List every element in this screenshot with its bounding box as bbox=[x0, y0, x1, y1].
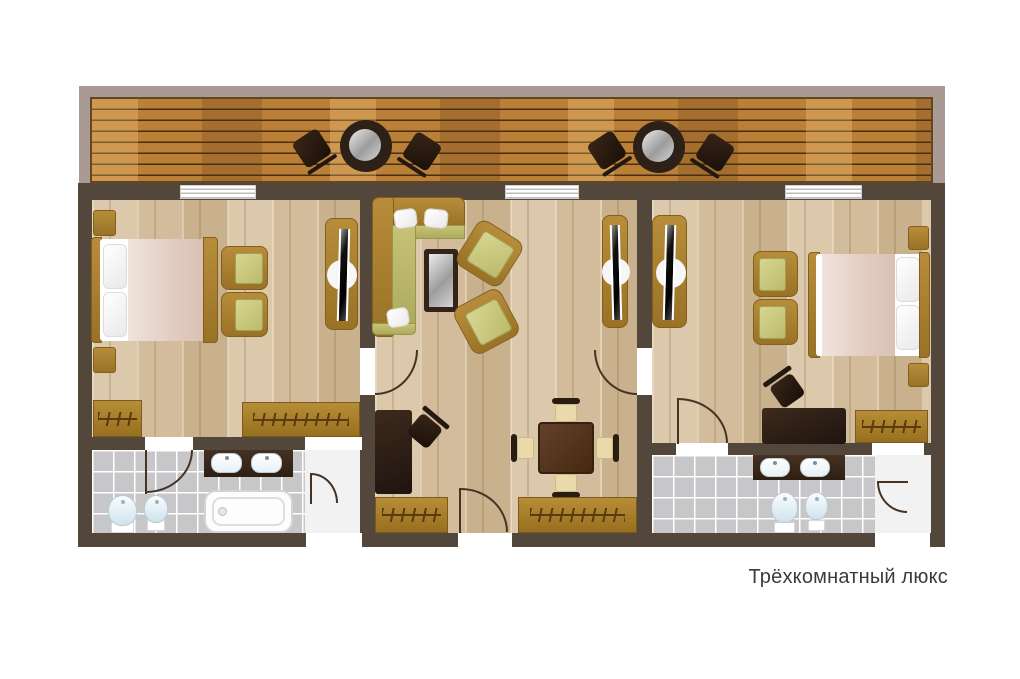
table-glass bbox=[349, 129, 381, 161]
armchair bbox=[221, 292, 268, 337]
headboard bbox=[919, 252, 930, 358]
pillow bbox=[896, 257, 920, 302]
wardrobe bbox=[375, 497, 448, 533]
wall-west bbox=[78, 183, 92, 547]
wardrobe bbox=[93, 400, 142, 437]
footboard bbox=[203, 237, 218, 343]
window-1 bbox=[180, 185, 256, 199]
dining-table bbox=[538, 422, 594, 474]
coffee-table bbox=[424, 249, 458, 312]
door-opening bbox=[360, 348, 375, 395]
tv-console-right bbox=[652, 215, 687, 328]
bidet bbox=[805, 492, 828, 520]
pillow bbox=[896, 305, 920, 350]
door-opening bbox=[875, 533, 930, 547]
pillow bbox=[103, 292, 127, 337]
bidet bbox=[144, 495, 168, 523]
door-opening bbox=[637, 348, 652, 395]
hanger-icon bbox=[98, 412, 137, 426]
hanger-icon bbox=[530, 508, 626, 522]
blanket bbox=[128, 239, 203, 341]
dining-chair bbox=[555, 474, 577, 492]
door-opening bbox=[145, 437, 193, 450]
sink bbox=[760, 458, 790, 477]
hanger-icon bbox=[862, 420, 920, 432]
door-opening bbox=[872, 443, 924, 455]
toilet bbox=[108, 495, 137, 526]
patio-table-icon bbox=[633, 121, 685, 173]
door-opening bbox=[676, 443, 728, 455]
bed-double-left bbox=[91, 237, 218, 343]
nightstand bbox=[93, 347, 116, 373]
toilet-base bbox=[774, 522, 795, 533]
desk bbox=[375, 410, 412, 494]
plan-caption: Трёхкомнатный люкс bbox=[749, 566, 948, 589]
bidet-base bbox=[808, 520, 825, 531]
dining-chair bbox=[517, 437, 534, 459]
floor-plan-page: Трёхкомнатный люкс bbox=[0, 0, 1020, 679]
dining-chair-back bbox=[613, 434, 619, 462]
hanger-icon bbox=[382, 508, 440, 522]
tv-console-left bbox=[325, 218, 358, 330]
table-glass bbox=[642, 130, 674, 162]
desk bbox=[762, 408, 846, 444]
window-3 bbox=[785, 185, 862, 199]
tv-screen-icon bbox=[337, 229, 350, 321]
sink bbox=[251, 453, 282, 473]
sink bbox=[800, 458, 830, 477]
door-opening bbox=[306, 533, 362, 547]
balcony-deck bbox=[90, 97, 933, 183]
entry-door-opening bbox=[458, 533, 512, 547]
wardrobe bbox=[855, 410, 928, 443]
tv-screen-icon bbox=[610, 225, 622, 320]
wardrobe bbox=[242, 402, 360, 437]
sofa-pillow bbox=[393, 207, 418, 229]
pillow bbox=[103, 244, 127, 289]
nightstand bbox=[93, 210, 116, 236]
armchair bbox=[753, 299, 798, 345]
door-opening bbox=[305, 437, 362, 450]
dining-chair bbox=[596, 437, 613, 459]
wall-east bbox=[931, 183, 945, 547]
bathtub bbox=[204, 490, 293, 533]
armchair bbox=[753, 251, 798, 297]
dining-chair bbox=[555, 404, 577, 422]
toilet bbox=[771, 492, 798, 523]
wardrobe bbox=[518, 497, 637, 533]
window-2 bbox=[505, 185, 579, 199]
sink bbox=[211, 453, 242, 473]
tv-console-living bbox=[602, 215, 628, 328]
blanket bbox=[822, 254, 895, 356]
armchair bbox=[221, 246, 268, 290]
sofa-pillow bbox=[423, 208, 449, 229]
bed-double-right bbox=[808, 252, 930, 358]
tv-screen-icon bbox=[663, 225, 676, 320]
nightstand bbox=[908, 363, 929, 387]
hanger-icon bbox=[253, 413, 348, 426]
patio-table-icon bbox=[340, 120, 392, 172]
nightstand bbox=[908, 226, 929, 250]
